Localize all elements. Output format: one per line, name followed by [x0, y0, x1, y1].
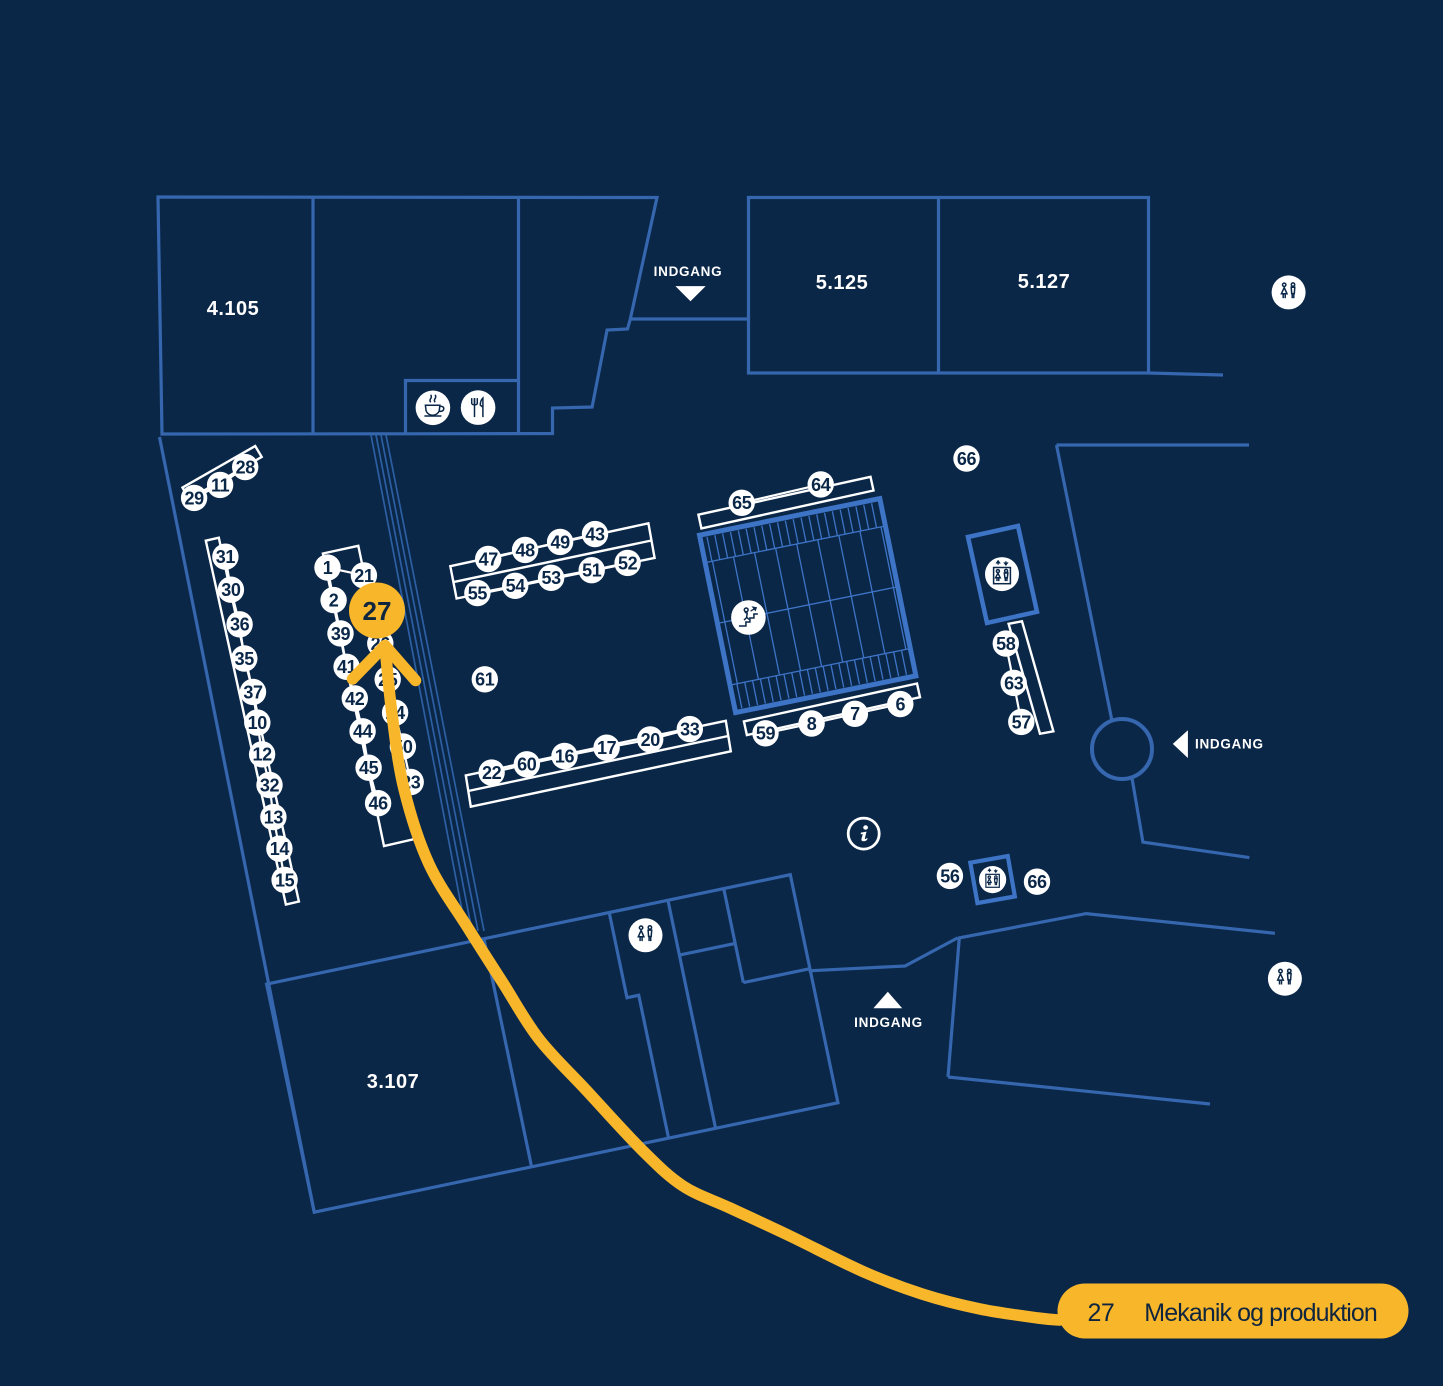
svg-text:39: 39	[331, 624, 351, 644]
svg-text:53: 53	[541, 568, 561, 588]
svg-text:35: 35	[235, 649, 255, 669]
svg-text:48: 48	[515, 540, 535, 560]
svg-text:INDGANG: INDGANG	[854, 1015, 923, 1030]
svg-text:51: 51	[582, 561, 602, 581]
svg-text:17: 17	[597, 738, 617, 758]
svg-text:60: 60	[517, 755, 537, 775]
svg-text:46: 46	[368, 794, 388, 814]
svg-text:36: 36	[230, 615, 250, 635]
svg-text:61: 61	[475, 670, 495, 690]
svg-text:6: 6	[895, 695, 905, 715]
svg-text:2: 2	[329, 591, 339, 611]
svg-text:59: 59	[756, 724, 776, 744]
svg-text:21: 21	[354, 566, 374, 586]
svg-text:44: 44	[353, 722, 373, 742]
svg-text:27: 27	[363, 596, 392, 626]
svg-text:64: 64	[811, 475, 831, 495]
svg-text:20: 20	[641, 730, 661, 750]
svg-text:INDGANG: INDGANG	[1195, 737, 1264, 752]
svg-text:47: 47	[479, 549, 499, 569]
svg-text:10: 10	[248, 713, 268, 733]
svg-text:66: 66	[1027, 872, 1047, 892]
svg-text:49: 49	[550, 532, 570, 552]
svg-text:13: 13	[264, 808, 284, 828]
svg-text:27: 27	[1088, 1299, 1115, 1327]
svg-text:5.127: 5.127	[1018, 271, 1071, 293]
svg-text:15: 15	[275, 870, 295, 890]
svg-text:14: 14	[270, 839, 290, 859]
svg-text:52: 52	[618, 553, 638, 573]
svg-text:4.105: 4.105	[207, 298, 260, 320]
svg-text:INDGANG: INDGANG	[654, 264, 723, 279]
svg-text:45: 45	[359, 758, 379, 778]
svg-text:5.125: 5.125	[816, 272, 869, 294]
svg-text:42: 42	[345, 689, 365, 709]
svg-text:11: 11	[211, 475, 230, 495]
svg-text:55: 55	[468, 584, 488, 604]
svg-text:16: 16	[555, 746, 575, 766]
svg-text:65: 65	[732, 493, 752, 513]
svg-text:1: 1	[323, 558, 333, 578]
svg-text:37: 37	[243, 682, 263, 702]
svg-text:54: 54	[506, 576, 526, 596]
svg-text:28: 28	[236, 458, 256, 478]
svg-text:56: 56	[940, 866, 960, 886]
svg-text:30: 30	[221, 580, 241, 600]
svg-text:57: 57	[1012, 712, 1032, 732]
svg-text:22: 22	[482, 763, 502, 783]
svg-text:66: 66	[957, 449, 977, 469]
svg-text:58: 58	[996, 634, 1016, 654]
svg-text:Mekanik og produktion: Mekanik og produktion	[1144, 1299, 1377, 1327]
svg-text:32: 32	[260, 775, 280, 795]
svg-text:12: 12	[252, 745, 272, 765]
svg-text:33: 33	[680, 720, 700, 740]
svg-text:3.107: 3.107	[367, 1071, 420, 1093]
svg-text:63: 63	[1004, 673, 1024, 693]
svg-text:31: 31	[216, 547, 236, 567]
svg-text:8: 8	[807, 714, 817, 734]
svg-text:29: 29	[184, 488, 204, 508]
svg-text:43: 43	[585, 525, 605, 545]
svg-text:7: 7	[850, 704, 860, 724]
